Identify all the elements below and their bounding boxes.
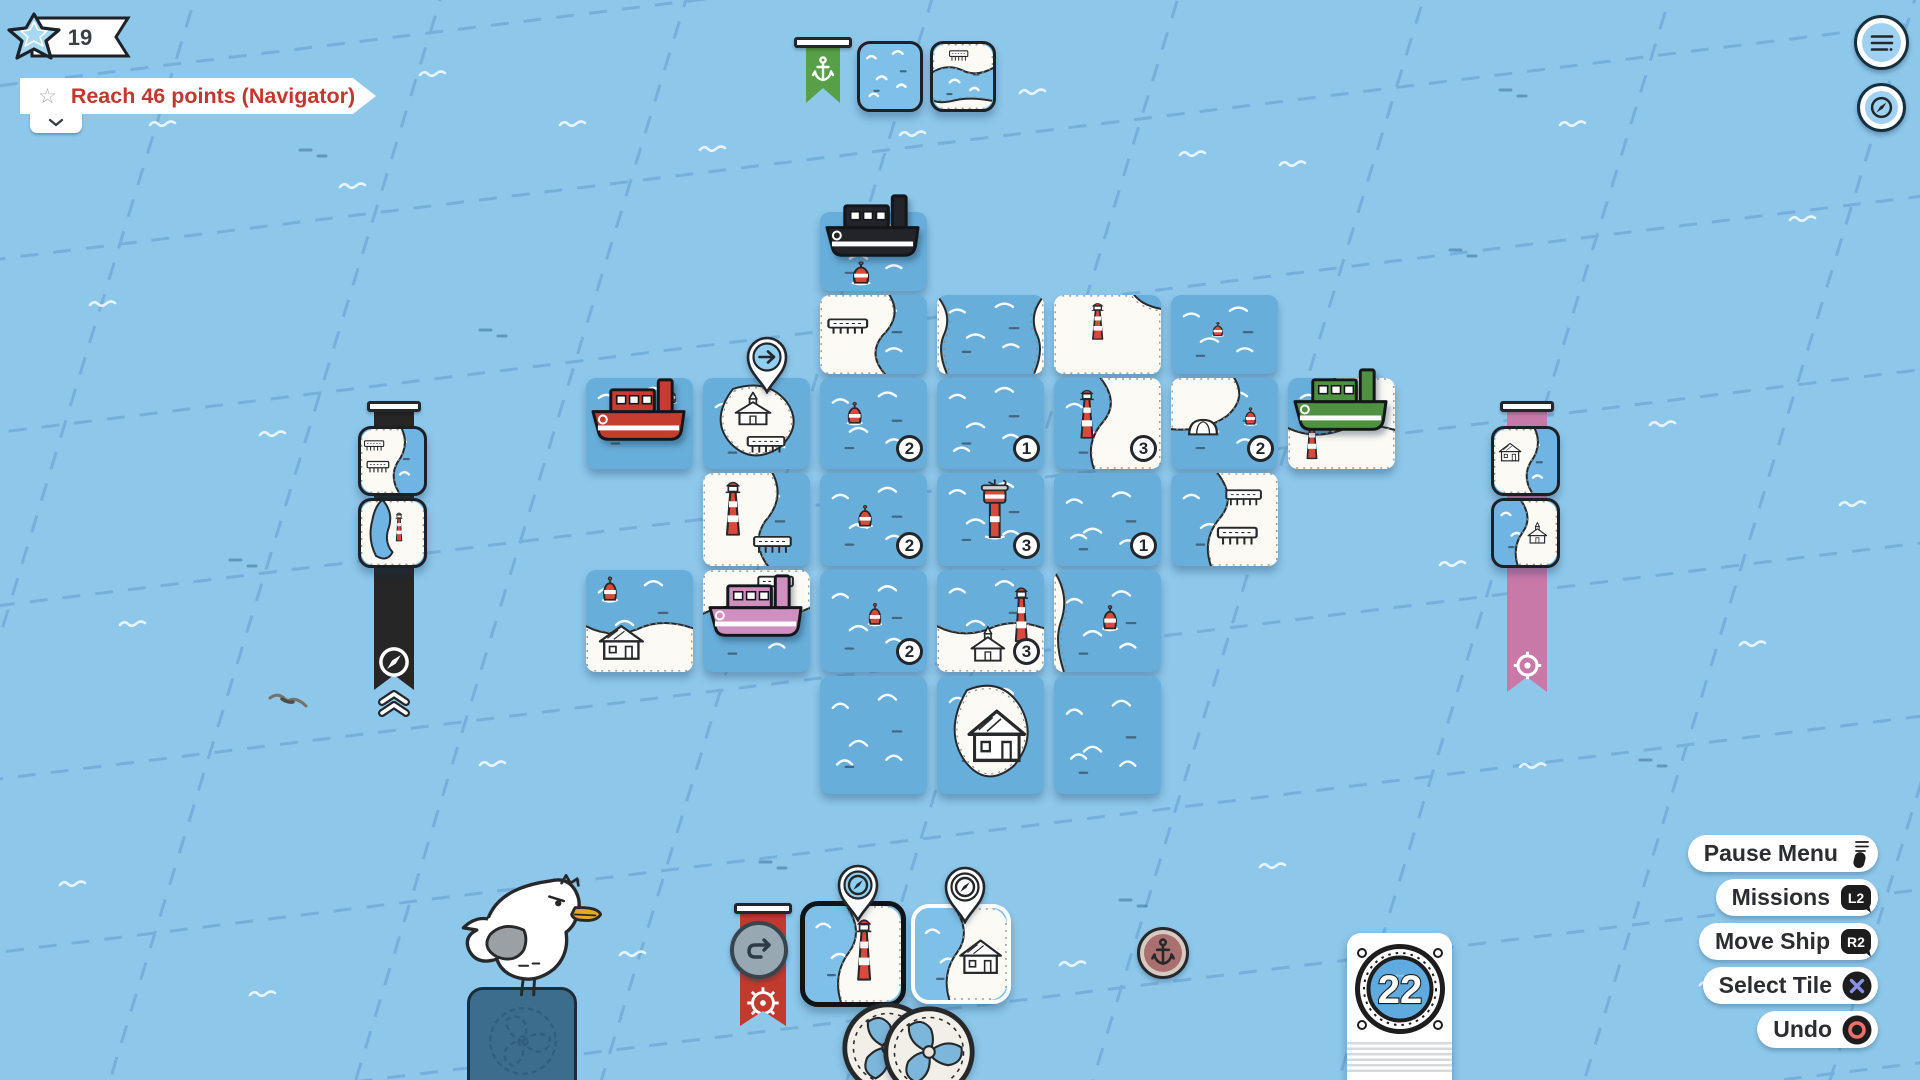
board-tile-r3c5[interactable] [1171,473,1278,566]
deck-card-stack: 22 [1347,933,1452,1080]
chevron-down-icon [48,118,64,127]
flying-seagull [266,690,310,716]
menu-button[interactable] [1854,15,1909,70]
left-flag-tile-2 [358,498,427,568]
compass-icon [378,646,410,678]
control-hint-label: Undo [1773,1016,1832,1043]
control-hints: Pause Menu Missions L2Move Ship R2Select… [1688,835,1878,1048]
control-hint-undo[interactable]: Undo [1757,1011,1878,1048]
mission-banner[interactable]: ☆ Reach 46 points (Navigator) [20,78,376,114]
deck-porthole: 22 [1352,941,1448,1037]
board-tile-r1c3[interactable] [937,295,1044,374]
board-tile-r2c0[interactable] [586,378,693,469]
undo-button[interactable] [730,921,788,979]
fan-token-2 [881,1004,977,1080]
board-tile-r4c3[interactable]: 3 [937,570,1044,672]
board-tile-r3c2[interactable]: 2 [820,473,927,566]
board-tile-r2c1[interactable] [703,378,810,469]
propeller-icon [484,1002,562,1080]
tile-number-badge: 1 [1013,435,1040,462]
deck-stack-edge [1347,1039,1452,1075]
svg-text:R2: R2 [1847,934,1865,950]
control-hint-label: Select Tile [1719,972,1832,999]
compass-button[interactable] [1857,83,1906,132]
deck-count: 22 [1378,968,1423,1012]
control-hint-label: Missions [1732,884,1830,911]
board-tile-r5c3[interactable] [937,676,1044,794]
hand-tile-1-selected[interactable] [800,901,906,1007]
tile-number-badge: 3 [1013,532,1040,559]
board-tile-r4c1[interactable] [703,570,810,672]
board-tile-r1c4[interactable] [1054,295,1161,374]
anchor-token [1137,927,1189,979]
board-tile-r3c1[interactable] [703,473,810,566]
tile-placement-pin [943,866,987,929]
r2-button-icon: R2 [1840,927,1872,957]
board-tile-r0c2[interactable] [820,212,927,291]
propeller-coin-icon [881,1004,977,1080]
discard-flag-bar [734,903,792,914]
star-outline-icon: ☆ [38,86,57,107]
control-hint-move-ship[interactable]: Move Ship R2 [1699,923,1878,960]
seagull-mascot [452,872,602,997]
tile-number-badge: 1 [1130,532,1157,559]
board-tile-r2c3[interactable]: 1 [937,378,1044,469]
l2-button-icon: L2 [1840,883,1872,913]
control-hint-select-tile[interactable]: Select Tile [1703,967,1878,1004]
tile-number-badge: 3 [1013,638,1040,665]
game-screen: 19 ☆ Reach 46 points (Navigator) 2132231… [0,0,1920,1080]
hand-tile-2[interactable] [911,904,1011,1004]
score-value: 19 [68,25,92,50]
seagull-pedestal [467,987,577,1080]
options-button-icon [1848,839,1872,869]
green-ship[interactable] [1291,362,1390,433]
board-tile-r4c2[interactable]: 2 [820,570,927,672]
anchor-icon [1149,937,1177,969]
cross-button-icon [1842,971,1872,1001]
left-route-flag-bar [367,401,421,412]
board-tile-r4c0[interactable] [586,570,693,672]
svg-text:L2: L2 [1848,890,1865,906]
board-tile-r5c2[interactable] [820,676,927,794]
anchor-icon [811,55,835,85]
control-hint-missions[interactable]: Missions L2 [1716,879,1878,916]
circle-button-icon [1842,1015,1872,1045]
right-route-flag-bar [1500,401,1554,412]
control-hint-label: Move Ship [1715,928,1830,955]
tile-placement-pin [836,864,880,927]
board-tile-r5c4[interactable] [1054,676,1161,794]
undo-arrow-icon [744,937,774,963]
compass-icon [1870,96,1893,119]
black-ship[interactable] [823,188,922,259]
control-hint-pause-menu[interactable]: Pause Menu [1688,835,1878,872]
mission-expand-tab[interactable] [30,112,82,133]
tile-number-badge: 2 [896,435,923,462]
red-ship[interactable] [589,372,688,443]
hamburger-icon [1870,34,1894,52]
tile-number-badge: 2 [896,532,923,559]
ship-destination-pin [745,336,789,399]
board-tile-r2c6[interactable] [1288,378,1395,469]
tile-number-badge: 2 [896,638,923,665]
left-flag-tile-1 [358,426,427,496]
target-icon [1512,650,1543,681]
control-hint-label: Pause Menu [1704,840,1838,867]
tile-number-badge: 2 [1247,435,1274,462]
harbor-flag-bar [794,37,852,48]
board-tile-r4c4[interactable] [1054,570,1161,672]
double-chevron-up-icon [376,690,412,718]
pink-ship[interactable] [706,568,805,639]
right-flag-tile-2 [1491,498,1560,568]
board-tile-r3c3[interactable]: 3 [937,473,1044,566]
board-tile-r2c4[interactable]: 3 [1054,378,1161,469]
tray-tile-1 [857,41,923,112]
board-tile-r1c2[interactable] [820,295,927,374]
board-tile-r2c2[interactable]: 2 [820,378,927,469]
score-flag: 19 [4,6,144,68]
right-flag-tile-1 [1491,426,1560,496]
tray-tile-2 [930,41,996,112]
board-tile-r1c5[interactable] [1171,295,1278,374]
board-tile-r2c5[interactable]: 2 [1171,378,1278,469]
board-tile-r3c4[interactable]: 1 [1054,473,1161,566]
tile-number-badge: 3 [1130,435,1157,462]
mission-label: Reach 46 points (Navigator) [71,84,355,109]
